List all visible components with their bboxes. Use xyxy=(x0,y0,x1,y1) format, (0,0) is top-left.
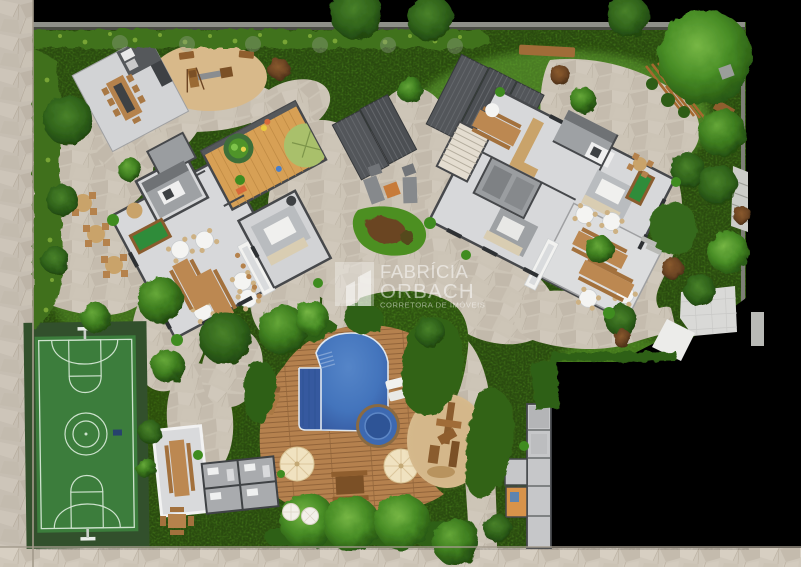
svg-text:CORRETORA DE IMÓVEIS: CORRETORA DE IMÓVEIS xyxy=(380,301,485,310)
svg-text:FABRÍCIA: FABRÍCIA xyxy=(380,261,468,282)
